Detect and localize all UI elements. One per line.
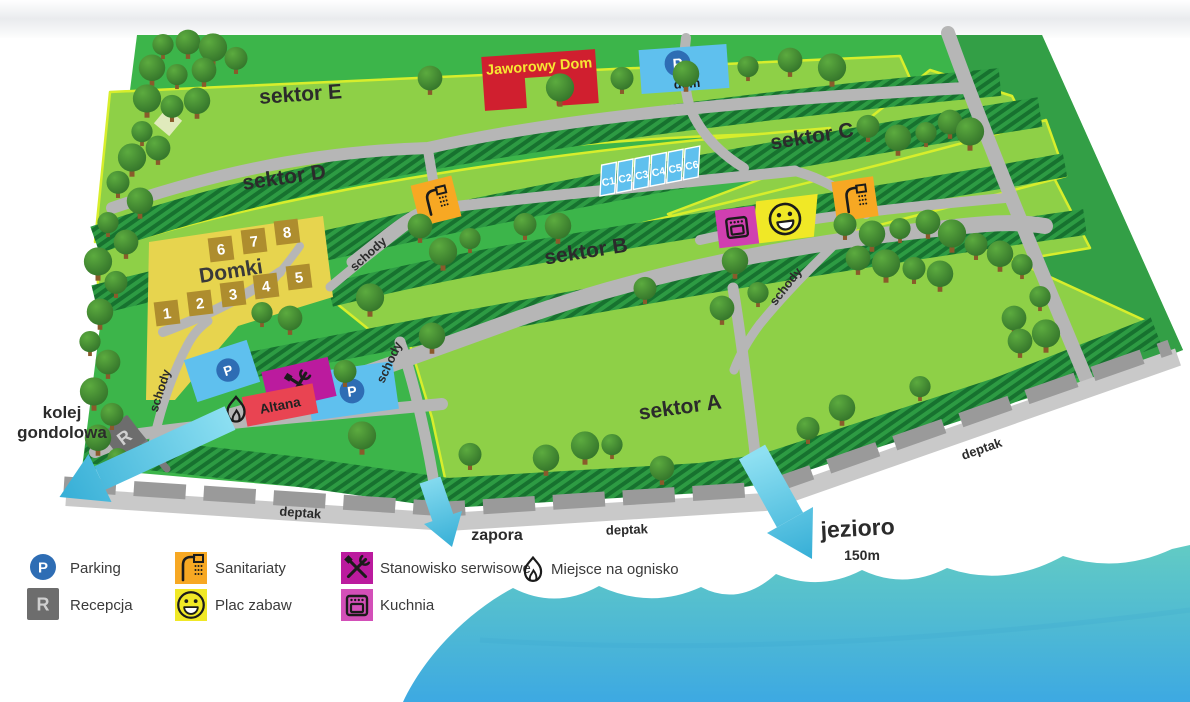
dam-label: zapora [471, 527, 523, 544]
cabin: 8 [274, 219, 301, 246]
pitch-label: C3 [634, 168, 650, 182]
playground [747, 194, 823, 244]
legend-label-playground: Plac zabaw [215, 597, 292, 614]
legend-label-sanitary: Sanitariaty [215, 560, 286, 577]
pitch-label: C1 [601, 175, 617, 189]
campground-map: P R [0, 0, 1190, 702]
legend-label-campfire: Miejsce na ognisko [551, 561, 679, 578]
top-shade-band [0, 0, 1190, 38]
lake-label: jezioro [819, 513, 895, 543]
pitch-label: C2 [617, 172, 633, 186]
legend-label-service: Stanowisko serwisowe [380, 560, 531, 577]
pitch-label: C6 [684, 159, 700, 173]
gondola-label-line2: gondolowa [17, 423, 107, 442]
legend-label-reception: Recepcja [70, 597, 133, 614]
cabin: 6 [208, 236, 235, 263]
pitch-label: C4 [651, 165, 667, 179]
legend-label-parking: Parking [70, 560, 121, 577]
pitch-label: C5 [668, 162, 684, 176]
cabin: 5 [286, 264, 313, 291]
cabin: 2 [187, 290, 214, 317]
legend-label-kitchen: Kuchnia [380, 597, 435, 614]
cabin: 3 [220, 281, 247, 308]
boardwalk-label: deptak [606, 521, 649, 537]
parking-icon [30, 554, 56, 580]
cabin: 7 [241, 228, 268, 255]
map-canvas: P R [0, 0, 1190, 702]
kitchen [715, 206, 759, 249]
gondola-label-line1: kolej [43, 403, 82, 422]
lake-distance-label: 150m [844, 547, 880, 563]
cabin: 1 [154, 300, 181, 327]
boardwalk-label: deptak [279, 504, 323, 522]
reception-icon [27, 588, 59, 620]
